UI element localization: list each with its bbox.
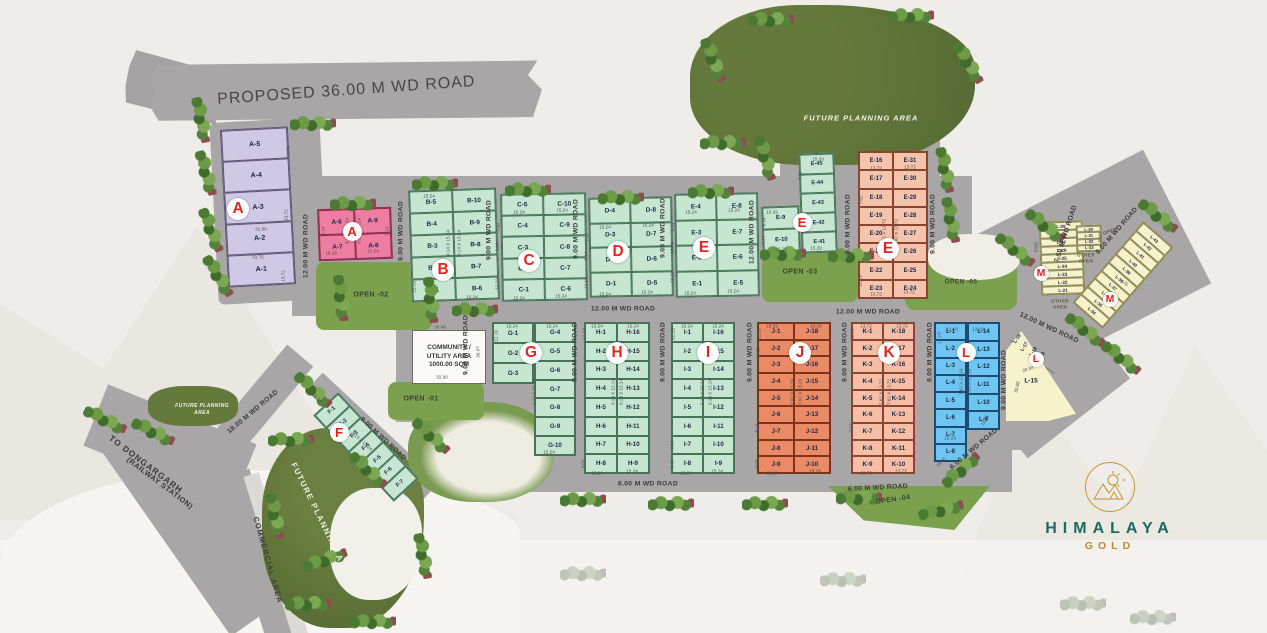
plot-L-21: L-21 [1042,285,1084,294]
block-e-mid: E-4E-3E-2E-1E-8E-7E-6E-5 [674,192,760,297]
road-label: 9.00 M WD ROAD [486,200,493,260]
dimension-label: 7.62 X 12.19 [967,369,972,395]
dimension-label: 7.62 X 12.19 [959,369,964,395]
road-label: 9.00 M WD ROAD [572,322,579,382]
dimension-label: 12.19 [937,332,942,344]
area-label: OPEN [1079,259,1093,264]
plot-E-25: E-25 [893,262,927,280]
block-badge-k: K [878,342,900,364]
dimension-label: 9.14 [321,227,326,236]
plot-G-3: G-3 [493,363,533,383]
block-badge-c: C [518,250,540,272]
plot-E-30: E-30 [893,170,927,188]
dimension-label: 7.62 X 18.29 [790,379,795,405]
dimension-label: 15.24 [599,292,611,297]
dimension-label: 7.62 [585,233,590,242]
road-label: 9.00 M WD ROAD [930,194,937,254]
road-label: 12.00 M WD ROAD [591,306,655,313]
plot-G-8: G-8 [535,398,575,417]
dimension-label: 15.24 [543,450,555,455]
plot-G-6: G-6 [535,361,575,380]
plot-E-18: E-18 [859,189,893,207]
dimension-label: 7.62 X 13.72 [887,379,892,405]
dimension-label: 12.19 [582,328,587,340]
dimension-label: 15.29 [812,157,824,162]
plot-I-10: I-10 [703,436,734,455]
block-badge-m: M [1103,292,1118,307]
dimension-label: 9.14 X 15.24 [446,230,451,256]
dimension-label: 9.00 [581,460,586,469]
plot-K-13: K-13 [883,406,914,423]
dimension-label: 9.14 [495,243,500,252]
area-label: OTHER [1051,299,1069,304]
dimension-label: 13.72 [860,324,872,329]
plot-L-15: L-15 [1024,378,1037,385]
plot-column: G-4G-5G-6G-7G-8G-9G-10 [535,323,575,455]
dimension-label: 30.47 [476,346,481,358]
dimension-label: 9.14 [385,227,390,236]
plot-C-4: C-4 [501,215,543,237]
area-label: OTHER [1077,253,1095,258]
road-label: 9.00 M WD ROAD [463,315,470,375]
block-badge-e: E [877,238,899,260]
plot-J-7: J-7 [758,423,794,440]
dimension-label: 15.24 [728,208,740,213]
plot-H-7: H-7 [585,436,617,455]
plot-L-10: L-10 [968,394,999,412]
dimension-label: 30.48 [434,325,446,330]
dimension-label: 18.29 [766,324,778,329]
site-plan-canvas: PROPOSED 36.00 M WD ROAD COMMUNITY / UTI… [0,0,1267,633]
plot-column: E-16E-17E-18E-19E-20E-21E-22E-23 [859,152,893,298]
plot-E-43: E-43 [801,193,836,214]
dimension-label: 15.24 [712,324,724,329]
plot-J-13: J-13 [794,406,830,423]
plot-L-6: L-6 [935,409,966,426]
block-badge-e: E [793,213,812,232]
dimension-label: 12.19 [494,330,499,342]
dimension-label: 12.19 [944,436,956,441]
tree-cluster [820,572,866,588]
dimension-label: 31.80 [255,227,267,232]
dimension-label: 7.62 X 18.29 [798,379,803,405]
plot-H-6: H-6 [585,417,617,436]
road-label: 12.00 M WD ROAD [303,214,310,278]
dimension-label: 15.24 [513,296,525,301]
dimension-label: 18.29 [766,471,778,476]
area-label: OPEN -01 [403,396,438,403]
dimension-label: 15.24 [513,210,525,215]
area-label: OPEN -05 [945,279,978,286]
plot-I-4: I-4 [672,379,703,398]
block-badge-a: A [227,198,249,220]
dimension-label: 15.24 [423,194,435,199]
plot-E-19: E-19 [859,207,893,225]
plot-A-4: A-4 [223,159,291,194]
plot-L-12: L-12 [968,358,999,376]
plot-G-9: G-9 [535,417,575,436]
road-label: 9.00 M WD ROAD [660,198,667,258]
road-label: 6.00 M WD ROAD [618,481,678,488]
dimension-label: 13.72 [870,166,882,171]
plot-I-6: I-6 [672,417,703,436]
plot-E-29: E-29 [893,189,927,207]
dimension-label: 7.62 X 13.72 [879,379,884,405]
area-label: AREA [194,410,210,416]
dimension-label: 7.62 [859,196,864,205]
dimension-label: 18.29 [809,469,821,474]
plot-K-8: K-8 [852,440,883,457]
dimension-label: EWS [1098,232,1103,242]
plot-J-11: J-11 [794,440,830,457]
dimension-label: 9.14 X 15.24 [611,379,616,405]
dimension-label: 15.24 [642,223,654,228]
plot-column: L-14L-13L-12L-11L-10L-9 [968,323,999,429]
proposed-road-ribbon: PROPOSED 36.00 M WD ROAD [149,55,542,127]
block-badge-h: H [606,342,628,364]
plot-E-4: E-4 [675,194,716,220]
plot-E-44: E-44 [800,173,835,194]
dimension-label: 7.62 [496,223,501,232]
dimension-label: 9.14 X 15.24 [700,379,705,405]
dimension-label: 15.24 [367,249,379,254]
dimension-label: 15.24 [546,324,558,329]
logo-subtitle: GOLD [1030,540,1190,552]
block-badge-i: I [697,342,719,364]
area-label: OPEN -02 [353,292,388,299]
block-badge-e: E [693,237,715,259]
plot-C-8: C-8 [544,236,586,258]
dimension-label: 13.72 [286,146,291,158]
tree-cluster [560,492,606,508]
plot-J-8: J-8 [758,440,794,457]
plot-E-1: E-1 [676,270,717,296]
plot-H-10: H-10 [617,436,649,455]
block-l-blue-right: L-14L-13L-12L-11L-10L-9 [967,322,1000,430]
block-badge-l: L [957,343,976,362]
dimension-label: 9.14 [762,218,767,227]
dimension-label: 15.24 [685,210,697,215]
block-badge-a: A [343,222,362,241]
dimension-label: 18.29 [325,251,337,256]
plot-K-12: K-12 [883,423,914,440]
tree-cluster [742,496,788,512]
dimension-label: 12.19 [946,327,958,332]
plot-J-6: J-6 [758,406,794,423]
dimension-label: 7.62 [756,348,761,357]
dimension-label: 15.24 [711,469,723,474]
dimension-label: 15.24 [599,225,611,230]
dimension-label: 15.24 [626,469,638,474]
dimension-label: 18.29 [766,210,778,215]
dimension-label: 9.14 [761,236,766,245]
dimension-label: 15.24 [556,208,568,213]
dimension-label: 13.72 [904,165,916,170]
dimension-label: 13.72 [903,290,915,295]
block-badge-g: G [520,342,542,364]
open-03-area [762,252,858,302]
himalaya-gold-logo: HIMALAYA GOLD [1030,462,1190,552]
plot-E-17: E-17 [859,170,893,188]
road-label: 12.00 M WD ROAD [749,200,756,264]
dimension-label: 12.19 [495,278,500,290]
plot-column: E-45E-44E-43E-42E-41 [799,153,836,252]
road-label: 9.00 M WD ROAD [573,199,580,259]
dimension-label: 13.72 [895,469,907,474]
dimension-label: 9.14 X 15.24 [619,379,624,405]
dimension-label: 15.24 [627,324,639,329]
plot-H-14: H-14 [617,361,649,380]
dimension-label: 12.19 [671,328,676,340]
dimension-label: 12.19 [757,328,762,340]
block-badge-d: D [607,241,629,263]
logo-mountain-icon [1085,462,1135,512]
dimension-label: 15.24 [506,324,518,329]
dimension-label: 15.24 [727,289,739,294]
plot-I-5: I-5 [672,398,703,417]
road-label: 9.00 M WD ROAD [660,322,667,382]
road-label: 9.00 M WD ROAD [842,322,849,382]
dimension-label: 15.24 [423,297,435,302]
dimension-label: 13.72 [870,292,882,297]
dimension-label: 7.62 [798,172,803,181]
dimension-label: 15.24 [641,290,653,295]
dimension-label: 13.72 [281,270,286,282]
tree-cluster [648,496,694,512]
area-label: OPEN -03 [782,269,817,276]
dimension-label: 15.29 [810,246,822,251]
plot-I-11: I-11 [703,417,734,436]
plot-I-3: I-3 [672,361,703,380]
dimension-label: 15.24 [591,324,603,329]
dimension-label: 15.24 [680,471,692,476]
plot-K-6: K-6 [852,406,883,423]
dimension-label: 9.14 [670,441,675,450]
tree-cluster [1130,610,1176,626]
dimension-label: 9.00 [755,460,760,469]
area-label: FUTURE PLANNING [175,403,229,409]
plot-H-11: H-11 [617,417,649,436]
plot-K-7: K-7 [852,423,883,440]
road-label: 9.00 M WD ROAD [398,201,405,261]
plot-J-12: J-12 [794,423,830,440]
plot-K-3: K-3 [852,356,883,373]
tree-cluster [1060,596,1106,612]
dimension-label: 15.24 [591,471,603,476]
dimension-label: 12.19 [972,327,984,332]
proposed-road-label: PROPOSED 36.00 M WD ROAD [216,73,475,109]
dimension-label: 9.14 [671,223,676,232]
dimension-label: 13.72 [860,471,872,476]
road-label: 9.00 M WD ROAD [927,322,934,382]
plot-C-7: C-7 [544,257,586,279]
dimension-label: 15.24 [681,324,693,329]
dimension-label: 12.19 [412,281,417,293]
open-05-sand [928,234,1020,280]
tree-cluster [560,566,606,582]
dimension-label: 9.14 X 15.24 [708,379,713,405]
plot-A-5: A-5 [221,127,289,162]
dimension-label: 12.19 [850,328,855,340]
road-label: 12.00 M WD ROAD [836,309,900,316]
dimension-label: 12.19 [858,275,863,287]
area-label: OPEN [1053,305,1067,310]
block-badge-m: M [1034,266,1049,281]
road-label: 9.00 M WD ROAD [1001,350,1008,410]
dimension-label: 13.72 [896,324,908,329]
plot-L-11: L-11 [968,376,999,394]
block-e-41-45: E-45E-44E-43E-42E-41 [798,152,837,253]
dimension-label: 10.79 [670,242,675,254]
dimension-label: 9.14 X 15.24 [457,230,462,256]
dimension-label: 32.90 [436,375,448,380]
block-badge-j: J [789,342,811,364]
dimension-label: 9.12 [849,424,854,433]
dimension-label: 15.24 [684,291,696,296]
future-planning-area-top [690,5,975,165]
dimension-label: 18.29 [775,247,787,252]
dimension-label: 18.29 [810,324,822,329]
road-label: 9.00 M WD ROAD [747,322,754,382]
dimension-label: 9.14 X 15.24 [532,379,537,405]
block-g-right: G-4G-5G-6G-7G-8G-9G-10 [534,322,576,456]
dimension-label: 8.12 [755,424,760,433]
block-badge-b: B [432,259,454,281]
plot-K-11: K-11 [883,440,914,457]
dimension-label: 15.24 [555,294,567,299]
dimension-label: 15.24 [466,295,478,300]
road-label: 9.00 M WD ROAD [845,194,852,254]
block-badge-l: L [1029,352,1044,367]
plot-G-7: G-7 [535,380,575,399]
plot-E-22: E-22 [859,262,893,280]
plot-D-4: D-4 [589,198,630,223]
area-label: FUTURE PLANNING AREA [804,114,919,123]
dimension-label: 13.72 [284,209,289,221]
dimension-label: 12.19 [670,271,675,283]
dimension-label: 31.75 [252,255,264,260]
block-badge-f: F [330,423,349,442]
logo-title: HIMALAYA [1030,520,1190,538]
plot-I-7: I-7 [672,436,703,455]
plot-J-3: J-3 [758,356,794,373]
dimension-label: 9.00 [670,460,675,469]
dimension-label: 12.19 [584,277,589,289]
future-planning-bottom-sand [330,488,422,600]
dimension-label: 9.14 [584,252,589,261]
dimension-label: EWS [1034,242,1039,252]
